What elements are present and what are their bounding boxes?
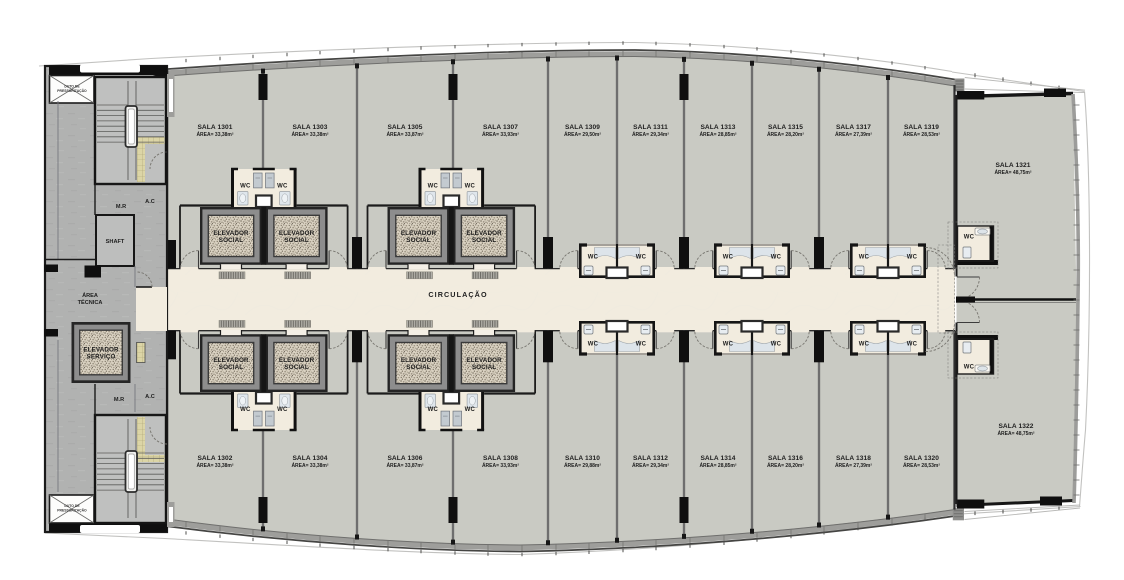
svg-text:ELEVADOR: ELEVADOR (213, 230, 249, 237)
svg-text:SALA 1321: SALA 1321 (995, 162, 1030, 169)
svg-text:SOCIAL: SOCIAL (219, 237, 243, 244)
svg-text:SALA 1308: SALA 1308 (483, 455, 518, 462)
svg-text:SALA 1303: SALA 1303 (292, 124, 327, 131)
svg-text:ÁREA= 28,20m²: ÁREA= 28,20m² (767, 462, 804, 469)
svg-text:ELEVADOR: ELEVADOR (466, 230, 502, 237)
svg-text:WC: WC (277, 183, 288, 189)
svg-text:SALA 1319: SALA 1319 (904, 124, 939, 131)
svg-text:WC: WC (428, 183, 439, 189)
svg-text:ÁREA: ÁREA (82, 292, 98, 299)
svg-text:SHAFT: SHAFT (106, 239, 125, 245)
svg-text:SALA 1304: SALA 1304 (292, 455, 327, 462)
svg-text:ÁREA= 29,50m²: ÁREA= 29,50m² (564, 131, 601, 138)
svg-text:WC: WC (636, 255, 647, 261)
svg-text:WC: WC (636, 342, 647, 348)
svg-text:SOCIAL: SOCIAL (406, 364, 430, 371)
svg-text:SALA 1302: SALA 1302 (197, 455, 232, 462)
svg-text:M.R: M.R (114, 397, 124, 403)
svg-text:PRESSURIZAÇÃO: PRESSURIZAÇÃO (57, 508, 87, 513)
svg-text:ÁREA= 33,38m²: ÁREA= 33,38m² (291, 131, 328, 138)
svg-text:ELEVADOR: ELEVADOR (279, 357, 315, 364)
svg-text:ÁREA= 33,93m²: ÁREA= 33,93m² (482, 462, 519, 469)
svg-text:SERVIÇO: SERVIÇO (87, 354, 116, 361)
svg-text:WC: WC (964, 235, 975, 241)
svg-text:WC: WC (465, 407, 476, 413)
svg-text:ÁREA= 33,93m²: ÁREA= 33,93m² (482, 131, 519, 138)
svg-text:SALA 1311: SALA 1311 (633, 124, 668, 131)
svg-text:SALA 1315: SALA 1315 (768, 124, 803, 131)
svg-text:WC: WC (723, 342, 734, 348)
svg-text:WC: WC (859, 255, 870, 261)
svg-text:SALA 1312: SALA 1312 (633, 455, 668, 462)
svg-text:ÁREA= 28,85m²: ÁREA= 28,85m² (699, 462, 736, 469)
svg-text:ÁREA= 48,75m²: ÁREA= 48,75m² (994, 169, 1031, 176)
svg-text:ÁREA= 33,38m²: ÁREA= 33,38m² (291, 462, 328, 469)
svg-text:ÁREA= 33,87m²: ÁREA= 33,87m² (386, 131, 423, 138)
svg-text:SALA 1309: SALA 1309 (565, 124, 600, 131)
svg-text:WC: WC (771, 342, 782, 348)
svg-text:SALA 1322: SALA 1322 (998, 423, 1033, 430)
svg-text:SALA 1307: SALA 1307 (483, 124, 518, 131)
svg-text:DUTO DE: DUTO DE (64, 504, 80, 508)
svg-text:ÁREA= 29,34m²: ÁREA= 29,34m² (632, 131, 669, 138)
svg-text:SALA 1318: SALA 1318 (836, 455, 871, 462)
svg-text:M.R: M.R (116, 204, 126, 210)
svg-text:A.C: A.C (145, 199, 155, 205)
svg-text:WC: WC (859, 342, 870, 348)
svg-text:ÁREA= 27,39m²: ÁREA= 27,39m² (835, 131, 872, 138)
svg-text:WC: WC (771, 255, 782, 261)
svg-text:ELEVADOR: ELEVADOR (401, 357, 437, 364)
svg-text:CIRCULAÇÃO: CIRCULAÇÃO (428, 290, 487, 299)
svg-text:SALA 1314: SALA 1314 (700, 455, 735, 462)
svg-text:TÉCNICA: TÉCNICA (78, 298, 103, 306)
svg-text:ELEVADOR: ELEVADOR (279, 230, 315, 237)
svg-text:WC: WC (588, 255, 599, 261)
svg-text:WC: WC (907, 255, 918, 261)
svg-text:WC: WC (588, 342, 599, 348)
svg-text:WC: WC (465, 183, 476, 189)
svg-text:SOCIAL: SOCIAL (472, 237, 496, 244)
svg-text:ÁREA= 28,53m²: ÁREA= 28,53m² (903, 131, 940, 138)
svg-text:WC: WC (277, 407, 288, 413)
svg-text:A.C: A.C (145, 394, 155, 400)
svg-text:SALA 1306: SALA 1306 (387, 455, 422, 462)
svg-text:ELEVADOR: ELEVADOR (83, 347, 119, 354)
svg-text:SALA 1313: SALA 1313 (700, 124, 735, 131)
svg-text:SALA 1305: SALA 1305 (387, 124, 422, 131)
svg-text:ÁREA= 33,87m²: ÁREA= 33,87m² (386, 462, 423, 469)
svg-text:SOCIAL: SOCIAL (406, 237, 430, 244)
svg-text:ÁREA= 29,34m²: ÁREA= 29,34m² (632, 462, 669, 469)
svg-text:WC: WC (240, 407, 251, 413)
svg-text:ÁREA= 28,53m²: ÁREA= 28,53m² (903, 462, 940, 469)
svg-text:WC: WC (240, 183, 251, 189)
svg-text:WC: WC (964, 365, 975, 371)
svg-text:ÁREA= 27,39m²: ÁREA= 27,39m² (835, 462, 872, 469)
svg-text:DUTO DE: DUTO DE (64, 85, 80, 89)
svg-text:SOCIAL: SOCIAL (472, 364, 496, 371)
svg-text:ELEVADOR: ELEVADOR (213, 357, 249, 364)
svg-text:SALA 1316: SALA 1316 (768, 455, 803, 462)
svg-text:WC: WC (723, 255, 734, 261)
svg-text:WC: WC (428, 407, 439, 413)
svg-text:ÁREA= 28,20m²: ÁREA= 28,20m² (767, 131, 804, 138)
svg-text:SALA 1317: SALA 1317 (836, 124, 871, 131)
svg-text:SOCIAL: SOCIAL (284, 237, 308, 244)
svg-text:SOCIAL: SOCIAL (284, 364, 308, 371)
svg-text:ÁREA= 33,38m²: ÁREA= 33,38m² (196, 131, 233, 138)
svg-text:ÁREA= 28,85m²: ÁREA= 28,85m² (699, 131, 736, 138)
svg-text:ELEVADOR: ELEVADOR (401, 230, 437, 237)
svg-text:SALA 1310: SALA 1310 (565, 455, 600, 462)
svg-text:SALA 1320: SALA 1320 (904, 455, 939, 462)
svg-text:ELEVADOR: ELEVADOR (466, 357, 502, 364)
svg-text:SALA 1301: SALA 1301 (197, 124, 232, 131)
svg-text:ÁREA= 33,38m²: ÁREA= 33,38m² (196, 462, 233, 469)
svg-text:SOCIAL: SOCIAL (219, 364, 243, 371)
svg-text:PRESSURIZAÇÃO: PRESSURIZAÇÃO (57, 88, 87, 93)
svg-text:ÁREA= 48,75m²: ÁREA= 48,75m² (997, 430, 1034, 437)
svg-text:ÁREA= 29,88m²: ÁREA= 29,88m² (564, 462, 601, 469)
svg-text:WC: WC (907, 342, 918, 348)
